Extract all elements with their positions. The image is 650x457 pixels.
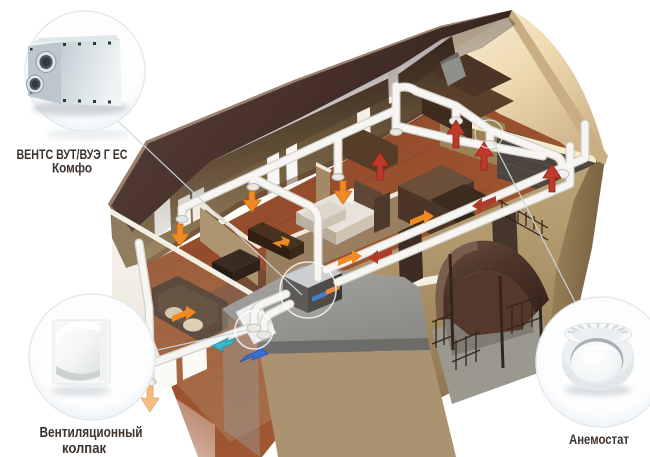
svg-text:Анемостат: Анемостат (569, 432, 629, 447)
svg-text:Комфо: Комфо (52, 160, 92, 176)
svg-text:колпак: колпак (62, 440, 106, 457)
svg-text:Вентиляционный: Вентиляционный (40, 424, 143, 441)
